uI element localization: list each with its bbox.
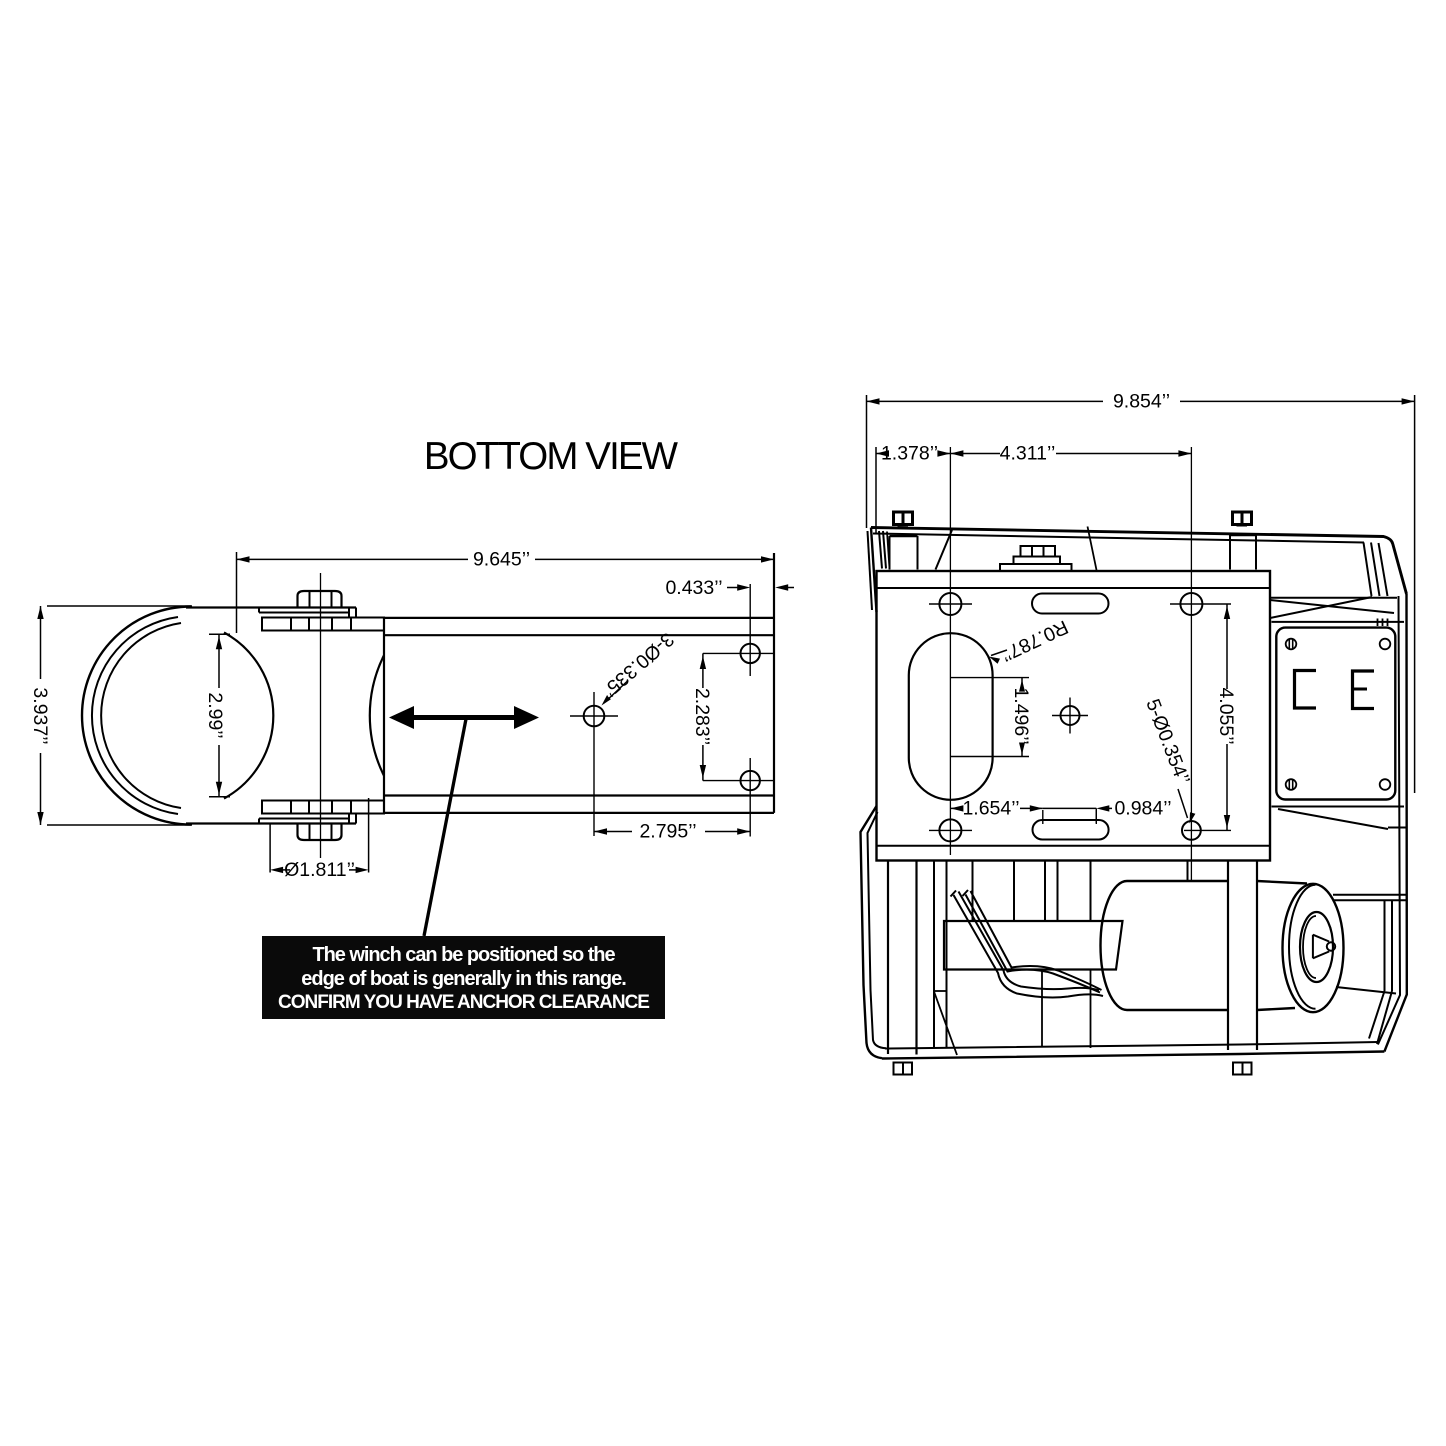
svg-text:2.283’’: 2.283’’ [691,688,713,745]
svg-text:The winch can be positioned so: The winch can be positioned so the [312,944,615,966]
svg-text:9.854’’: 9.854’’ [1113,391,1170,413]
svg-text:1.496’’: 1.496’’ [1010,687,1032,744]
svg-text:edge of boat is generally in t: edge of boat is generally in this range. [301,968,626,990]
svg-text:1.654’’: 1.654’’ [962,798,1019,820]
svg-text:0.433’’: 0.433’’ [665,577,722,599]
svg-text:1.378’’: 1.378’’ [881,443,938,465]
svg-text:4.311’’: 4.311’’ [1000,443,1056,465]
svg-text:2.795’’: 2.795’’ [639,821,696,843]
svg-text:9.645’’: 9.645’’ [473,549,530,571]
svg-text:4.055’’: 4.055’’ [1215,687,1237,744]
svg-text:BOTTOM VIEW: BOTTOM VIEW [424,435,679,478]
svg-text:3.937’’: 3.937’’ [29,687,51,744]
svg-text:0.984’’: 0.984’’ [1114,798,1171,820]
svg-text:CONFIRM YOU HAVE ANCHOR CLEARA: CONFIRM YOU HAVE ANCHOR CLEARANCE [278,992,649,1013]
svg-text:2.99’’: 2.99’’ [204,692,226,738]
svg-text:Ø1.811’’: Ø1.811’’ [284,859,355,881]
